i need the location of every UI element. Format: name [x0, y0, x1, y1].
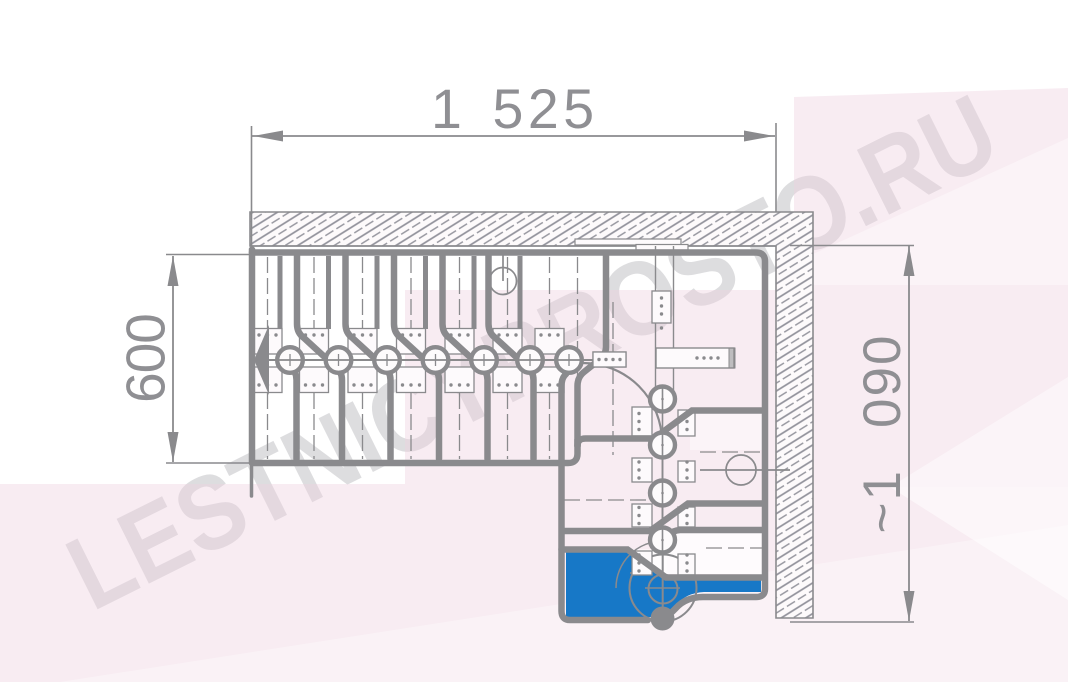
svg-text:~1 090: ~1 090 — [853, 334, 912, 534]
svg-text:525: 525 — [493, 78, 599, 140]
svg-text:1: 1 — [431, 78, 466, 140]
svg-text:600: 600 — [115, 314, 177, 403]
